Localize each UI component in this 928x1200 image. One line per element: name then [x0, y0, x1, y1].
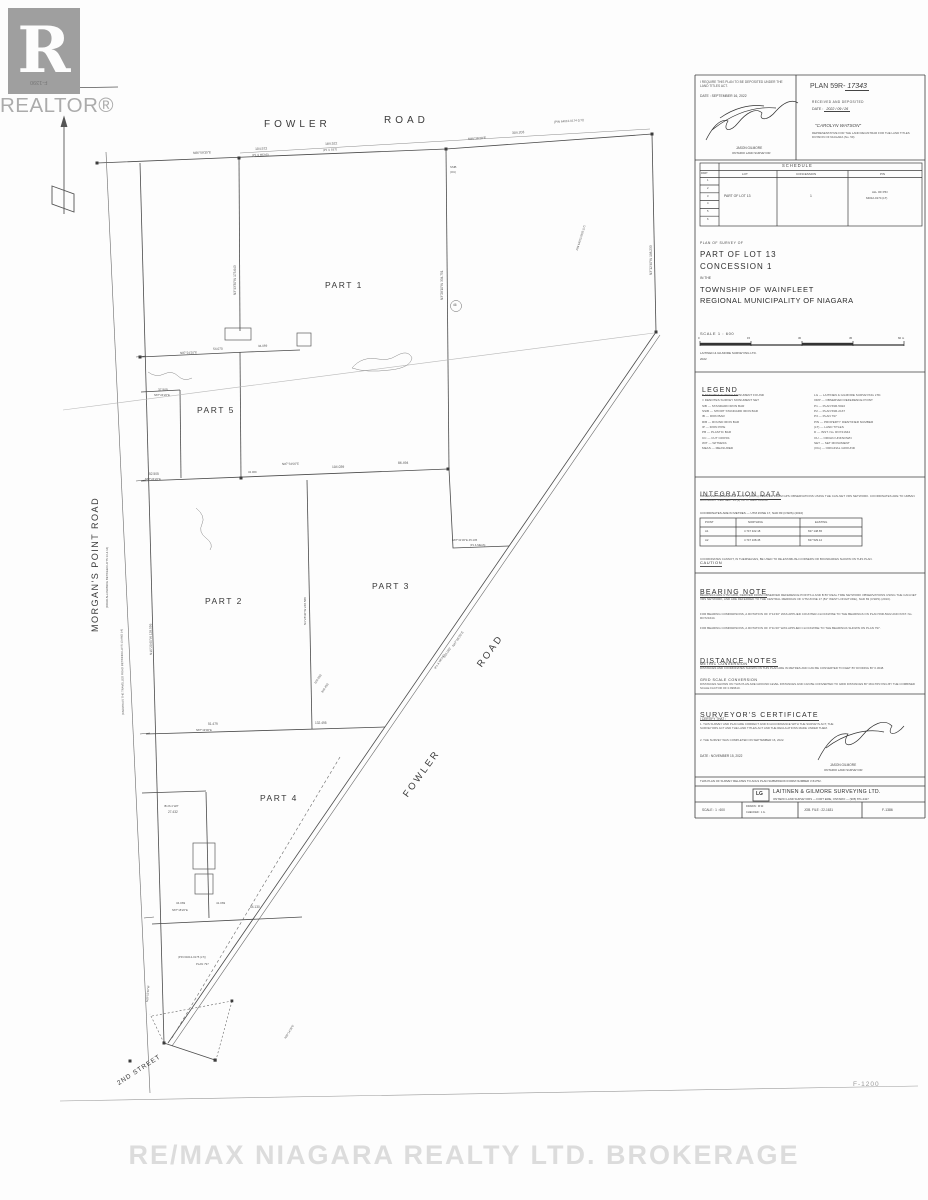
- title-plan-of-survey: PLAN OF SURVEY OF: [700, 241, 743, 245]
- measurement-annotation: 51.479: [208, 723, 218, 726]
- measurement-annotation: (P1 & SET): [323, 148, 337, 152]
- survey-plan-page: R REALTOR® F-1390 I REQUIRE THIS PLAN TO…: [0, 0, 928, 1200]
- realtor-logo-letter: R: [17, 19, 70, 83]
- panel-annotation: 30: [798, 337, 801, 340]
- part-label: PART 2: [205, 596, 243, 606]
- panel-annotation: 3: [707, 196, 709, 199]
- certificate-intro: I CERTIFY THAT :: [700, 717, 726, 721]
- measurement-annotation: (P1 & MEAS): [470, 545, 485, 548]
- company-subline: ONTARIO LAND SURVEYORS — FORT ERIE, ONTA…: [773, 797, 869, 801]
- part-label: PART 3: [372, 581, 410, 591]
- part-label: PART 4: [260, 793, 298, 803]
- measurement-annotation: PLAN 797: [196, 963, 209, 966]
- road-label: ROAD: [384, 115, 429, 126]
- panel-annotation: POINT: [705, 521, 714, 524]
- measurement-annotation: (P1 & MEAS): [252, 153, 269, 156]
- road-label: MORGAN'S POINT ROAD: [90, 497, 100, 632]
- panel-annotation: SCHEDULE: [782, 164, 813, 168]
- measurement-annotation: 104.039: [332, 465, 344, 469]
- footer-drawn: DRAWN : M.W.: [746, 805, 764, 808]
- company-logo-letters: LG: [756, 791, 763, 797]
- realtor-wordmark: REALTOR®: [0, 94, 126, 118]
- footer-sheet-ref: F-1386: [882, 808, 893, 812]
- panel-annotation: 64012-0174 (LT): [866, 197, 887, 200]
- title-part-of-lot: PART OF LOT 13: [700, 250, 777, 259]
- deposit-date-value: 2022 / 09 / 26: [824, 107, 850, 112]
- panel-annotation: 637 529.12: [808, 539, 822, 542]
- bearing-paragraph-3: FOR BEARING COMPARISONS, A ROTATION OF 0…: [700, 627, 922, 631]
- title-year: 2022: [700, 357, 707, 361]
- legend-item: □ DENOTES SURVEY MONUMENT SET: [702, 398, 764, 403]
- legend-item: (OG) — ORIGINAL GROUND: [814, 446, 881, 451]
- measurement-annotation: 132.495: [315, 722, 327, 725]
- measurement-annotation: 184.522: [325, 142, 337, 146]
- measurement-annotation: 54.070: [213, 347, 223, 351]
- integration-paragraph: OBSERVED REFERENCE POINTS (ORPs) DERIVED…: [700, 495, 918, 503]
- certificate-signer-name: JASON GILMORE: [830, 763, 856, 767]
- legend-left-column: ■ DENOTES SURVEY MONUMENT FOUND□ DENOTES…: [702, 393, 764, 451]
- measurement-annotation: (OU): [450, 171, 456, 174]
- deposit-signer-name: JASON GILMORE: [736, 146, 762, 150]
- panel-annotation: 2: [707, 188, 709, 191]
- received-deposited: RECEIVED AND DEPOSITED: [812, 100, 864, 104]
- footer-scale: SCALE : 1 : 600: [702, 808, 725, 812]
- legend-item: ORP — OBSERVED REFERENCE POINT: [814, 398, 881, 403]
- measurement-annotation: 34.069: [258, 344, 267, 347]
- panel-annotation: 60 m: [898, 337, 904, 340]
- certificate-date: DATE : NOVEMBER 15, 2022: [700, 754, 742, 758]
- title-township: TOWNSHIP OF WAINFLEET: [700, 285, 814, 294]
- panel-annotation: 4 747 108.45: [744, 539, 760, 542]
- integration-table-lines: [700, 518, 862, 546]
- measurement-annotation: SSIB: [450, 166, 456, 169]
- panel-annotation: 0: [698, 337, 700, 340]
- legend-right-column: LG — LAITINEN & GILMORE SURVEYING LTD.OR…: [814, 393, 881, 451]
- measurement-annotation: N87°24'20"E: [180, 351, 197, 355]
- plan-number: 17343: [845, 83, 868, 91]
- measurement-annotation: 37.505: [158, 389, 168, 392]
- measurement-annotation: N87°18'20"E: [172, 909, 188, 912]
- measurement-annotation: IB 26.4 WIT: [164, 805, 179, 808]
- parcel-boundaries: [97, 129, 660, 1093]
- measurement-annotation: 34.069: [248, 471, 257, 474]
- measurement-annotation: N3°28'10"W 334.751: [441, 270, 444, 300]
- deposit-signer-title: ONTARIO LAND SURVEYOR: [732, 151, 770, 155]
- measurement-annotation: N87°31'30"E 45.105: [452, 539, 477, 542]
- deposit-date: DATE : SEPTEMBER 16, 2022: [700, 94, 747, 98]
- certificate-signer-role: ONTARIO LAND SURVEYOR: [824, 768, 862, 772]
- panel-annotation: 45: [849, 337, 852, 340]
- part-label: PART 5: [197, 405, 235, 415]
- title-scale: SCALE 1 : 600: [700, 331, 734, 336]
- deposit-date-line: DATE : 2022 / 09 / 26: [812, 107, 850, 111]
- measurement-annotation: N3°28'30"W 248.588: [304, 597, 307, 625]
- registrar-representative-text: REPRESENTATIVE FOR THE LAND REGISTRAR FO…: [812, 132, 918, 140]
- measurement-annotation: 46: [453, 304, 457, 307]
- integration-coord-note: COORDINATES ARE IN METRES — UTM ZONE 17,…: [700, 511, 803, 515]
- plan-number-line: PLAN 59R-17343: [810, 83, 869, 90]
- panel-annotation: A2: [705, 539, 708, 542]
- measurement-annotation: N86°59'35"E: [193, 151, 211, 155]
- panel-annotation: EASTING: [815, 521, 827, 524]
- panel-annotation: 4 747 322.18: [744, 530, 760, 533]
- title-region: REGIONAL MUNICIPALITY OF NIAGARA: [700, 296, 854, 305]
- measurement-annotation: N16°20'40"W 128.556: [149, 624, 153, 655]
- panel-annotation: A1: [705, 530, 708, 533]
- measurement-annotation: 34.069: [176, 902, 185, 905]
- panel-annotation: 5: [707, 211, 709, 214]
- measurement-annotation: N87°34'00"E: [282, 462, 299, 465]
- measurement-annotation: N3°12'40"W 198.233: [650, 245, 653, 275]
- panel-annotation: NORTHING: [748, 521, 763, 524]
- title-concession: CONCESSION 1: [700, 262, 772, 271]
- scale-bar: [700, 341, 904, 346]
- part-label: PART 1: [325, 280, 363, 290]
- measurement-annotation: 41.069: [216, 902, 225, 905]
- panel-annotation: 15: [747, 337, 750, 340]
- deposit-requirement-text: I REQUIRE THIS PLAN TO BE DEPOSITED UNDE…: [700, 80, 792, 88]
- road-label: FOWLER: [264, 119, 331, 130]
- certificate-item-1: 1. THIS SURVEY AND PLAN ARE CORRECT AND …: [700, 723, 850, 731]
- panel-annotation: PART: [701, 173, 708, 176]
- caution-text: COORDINATES CANNOT, IN THEMSELVES, BE US…: [700, 558, 920, 562]
- panel-annotation: PART OF LOT 13: [724, 195, 751, 198]
- grid-scale-text: DISTANCES SHOWN ON THIS PLAN ARE GROUND …: [700, 683, 922, 691]
- measurement-annotation: 64.130: [250, 906, 260, 909]
- panel-annotation: CONCESSION: [796, 173, 816, 176]
- company-name: LAITINEN & GILMORE SURVEYING LTD.: [773, 789, 881, 795]
- metric-conversion-text: DISTANCES AND COORDINATES SHOWN ON THIS …: [700, 667, 922, 671]
- brokerage-watermark: RE/MAX NIAGARA REALTY LTD. BROKERAGE: [0, 1140, 928, 1171]
- flipped-file-ref: F-1390: [30, 79, 47, 85]
- footer-checked: CHECKED : J.G.: [746, 811, 766, 814]
- measurement-annotation: (ROAD ALLOWANCE BETWEEN LOTS 13 & 14): [106, 547, 109, 608]
- plan-prefix: PLAN 59R-: [810, 83, 845, 90]
- measurement-annotation: N87°24'20"E: [145, 478, 161, 481]
- measurement-annotation: (PIN 64012-0175 (LT)): [178, 956, 206, 959]
- measurement-annotation: 104.572: [255, 148, 267, 152]
- measurement-annotation: 86.494: [398, 461, 408, 465]
- title-firm: LAITINEN & GILMORE SURVEYING LTD.: [700, 351, 757, 355]
- title-in-the: IN THE: [700, 276, 711, 280]
- panel-annotation: 4: [707, 203, 709, 206]
- deposit-date-label: DATE :: [812, 107, 823, 111]
- measurement-annotation: N3°43'30"W 173.643: [234, 265, 237, 295]
- north-arrow-icon: [52, 117, 74, 214]
- certificate-item-2: 2. THE SURVEY WAS COMPLETED ON SEPTEMBER…: [700, 739, 850, 743]
- registrar-name: "CAROLYN WATSON": [815, 123, 861, 128]
- measurement-annotation: N87°24'20"E: [154, 394, 170, 397]
- legend-item: MEAS — MEASURED: [702, 446, 764, 451]
- panel-annotation: 637 148.65: [808, 530, 822, 533]
- panel-annotation: PIN: [880, 173, 885, 176]
- aols-submission-note: THIS PLAN OF SURVEY RELATES TO AOLS PLAN…: [700, 779, 822, 783]
- measurement-annotation: N87°19'00"E: [196, 729, 212, 732]
- panel-annotation: ALL OF PIN: [872, 191, 887, 194]
- corner-file-ref: F-1200: [853, 1081, 880, 1088]
- panel-annotation: 1: [810, 195, 812, 198]
- panel-annotation: 6: [707, 219, 709, 222]
- bearing-paragraph-1: BEARINGS ARE UTM GRID, DERIVED FROM OBSE…: [700, 594, 922, 602]
- footer-job-file: JOB. FILE : 22-1631: [804, 808, 833, 812]
- panel-annotation: 1: [707, 180, 709, 183]
- measurement-annotation: 27.432: [168, 811, 178, 814]
- panel-annotation: LOT: [742, 173, 748, 176]
- natural-features: [148, 301, 462, 551]
- measurement-annotation: 52.505: [149, 473, 159, 476]
- bearing-paragraph-2: FOR BEARING COMPARISONS, A ROTATION OF 0…: [700, 613, 922, 621]
